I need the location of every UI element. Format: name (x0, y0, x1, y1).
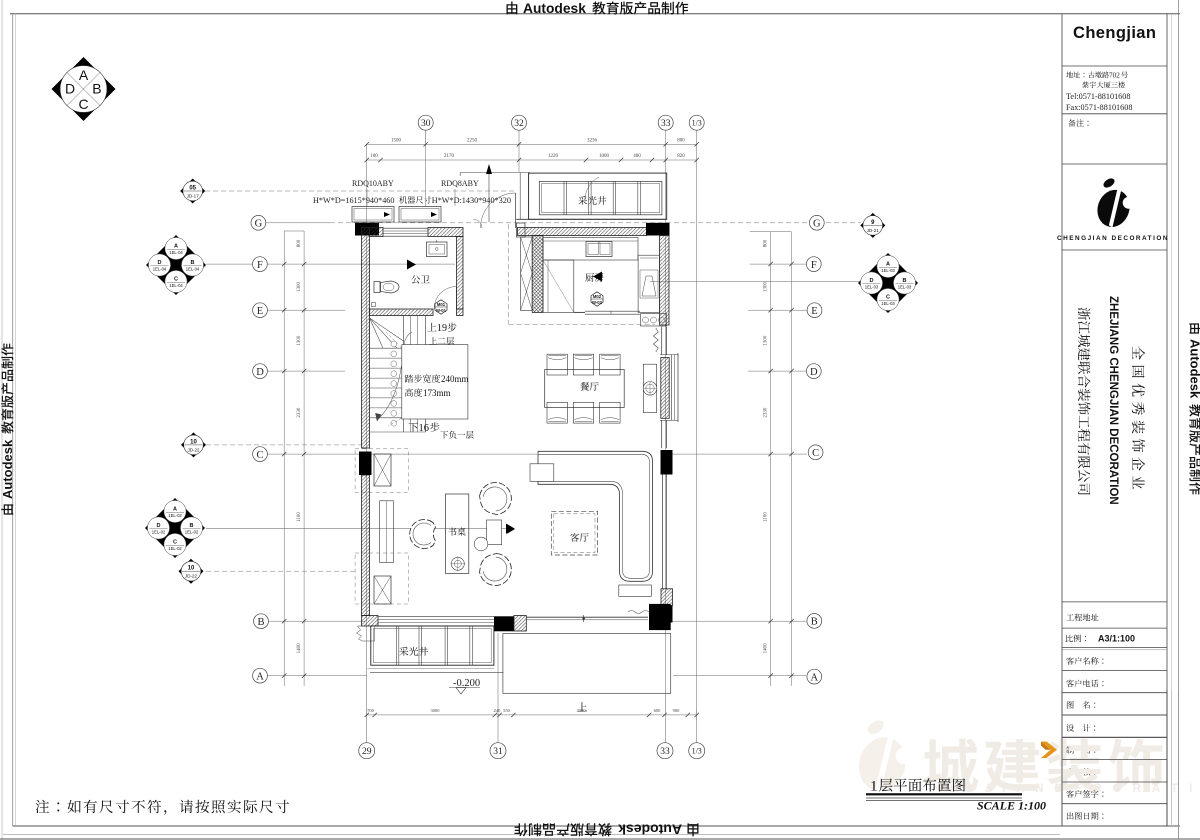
svg-text:JD-22: JD-22 (185, 574, 198, 579)
svg-text:1000: 1000 (599, 154, 610, 159)
svg-text:1300: 1300 (297, 335, 302, 346)
svg-text:2330: 2330 (764, 407, 769, 418)
svg-text:2330: 2330 (297, 407, 302, 418)
svg-text:JD-22: JD-22 (187, 447, 200, 452)
svg-text:800: 800 (297, 239, 302, 247)
svg-text:Autodesk: Autodesk (1188, 339, 1200, 399)
svg-text:Chengjian: Chengjian (1073, 24, 1156, 42)
svg-text:A: A (886, 262, 890, 268)
svg-text:F: F (811, 260, 817, 271)
svg-text:3000: 3000 (431, 708, 441, 713)
svg-text:SCALE 1:100: SCALE 1:100 (977, 799, 1046, 813)
svg-text:702: 702 (1109, 72, 1120, 80)
svg-text:240mm: 240mm (441, 374, 469, 384)
svg-text:A: A (174, 244, 178, 250)
svg-text:D: D (810, 367, 818, 378)
svg-text:B: B (92, 81, 101, 97)
svg-text:1100: 1100 (764, 512, 769, 522)
svg-text:CHENGJIAN DECORATION: CHENGJIAN DECORATION (1057, 235, 1169, 242)
svg-text:1EL-04: 1EL-04 (169, 250, 183, 255)
svg-text:RDQ10ABY: RDQ10ABY (352, 179, 394, 188)
svg-text:D: D (870, 278, 874, 284)
svg-text:1300: 1300 (764, 282, 769, 293)
svg-text:1500: 1500 (391, 139, 402, 144)
svg-text:C: C (886, 295, 890, 301)
svg-text:1: 1 (870, 779, 878, 795)
svg-text:A: A (173, 507, 177, 513)
svg-text:Autodesk: Autodesk (618, 822, 682, 838)
svg-text:D: D (158, 260, 162, 266)
svg-text:3000: 3000 (577, 708, 587, 713)
svg-text:Autodesk: Autodesk (523, 1, 586, 16)
svg-text:33: 33 (660, 747, 670, 757)
svg-text:1EL-03: 1EL-03 (881, 301, 895, 306)
svg-text:C: C (173, 540, 177, 546)
svg-text:JD-17: JD-17 (187, 194, 200, 199)
svg-text:700: 700 (367, 708, 375, 713)
svg-text:1220: 1220 (548, 154, 559, 159)
svg-text:W-01: W-01 (436, 308, 447, 313)
svg-text:D: D (256, 367, 264, 378)
svg-text:1100: 1100 (297, 512, 302, 522)
svg-text:1300: 1300 (297, 282, 302, 293)
svg-text:Fax:0571-88101608: Fax:0571-88101608 (1066, 103, 1132, 112)
svg-text:1/3: 1/3 (692, 747, 702, 756)
svg-text:B: B (903, 278, 907, 284)
svg-text:16: 16 (419, 423, 430, 434)
svg-text:32: 32 (514, 119, 524, 129)
svg-text:B: B (257, 617, 264, 628)
svg-text:1EL-03: 1EL-03 (898, 285, 912, 290)
svg-text:400: 400 (633, 154, 641, 159)
svg-text:B: B (811, 617, 818, 628)
svg-text:33: 33 (661, 119, 671, 129)
svg-text:1EL-02: 1EL-02 (152, 530, 166, 535)
svg-text:C: C (812, 448, 819, 459)
svg-text:900: 900 (673, 708, 681, 713)
svg-text:G: G (255, 218, 263, 229)
svg-text:30: 30 (421, 119, 431, 129)
svg-text:C: C (78, 96, 88, 112)
svg-text:E: E (811, 306, 817, 317)
svg-text:1EL-03: 1EL-03 (865, 285, 879, 290)
svg-text:ZHEJIANG CHENGJIAN DECORATION: ZHEJIANG CHENGJIAN DECORATION (1107, 296, 1119, 505)
svg-text:1/3: 1/3 (692, 119, 702, 128)
svg-text:820: 820 (677, 154, 685, 159)
svg-text:A3/1:100: A3/1:100 (1098, 634, 1135, 644)
svg-text:JD-21: JD-21 (867, 228, 880, 233)
svg-text:1400: 1400 (297, 643, 302, 654)
svg-text:Tel:0571-88101608: Tel:0571-88101608 (1066, 92, 1130, 101)
svg-text:800: 800 (677, 139, 685, 144)
svg-text:100: 100 (370, 154, 378, 159)
svg-text:550: 550 (503, 708, 511, 713)
svg-text:C: C (174, 277, 178, 283)
svg-text:A: A (79, 67, 89, 83)
svg-text:19: 19 (437, 323, 447, 334)
svg-text:C: C (256, 450, 263, 461)
svg-text:1400: 1400 (764, 643, 769, 654)
svg-text:M02: M02 (593, 294, 602, 299)
svg-text:3236: 3236 (587, 139, 598, 144)
svg-text:05: 05 (189, 186, 196, 192)
svg-text:W-02: W-02 (592, 300, 603, 305)
svg-text:F: F (257, 260, 263, 271)
svg-text:1EL-03: 1EL-03 (881, 268, 895, 273)
svg-text:240: 240 (494, 708, 502, 713)
svg-text:H*W*D:1430*940*320: H*W*D:1430*940*320 (432, 196, 511, 205)
svg-text:1EL-02: 1EL-02 (185, 530, 199, 535)
svg-text:A: A (811, 672, 819, 683)
svg-text:600: 600 (654, 708, 662, 713)
svg-text:800: 800 (764, 239, 769, 247)
svg-text:Autodesk: Autodesk (0, 439, 15, 499)
svg-text:10: 10 (188, 566, 195, 572)
svg-text:1EL-04: 1EL-04 (169, 283, 183, 288)
svg-text:D: D (157, 523, 161, 529)
svg-text:29: 29 (362, 747, 372, 757)
svg-text:B: B (191, 260, 195, 266)
svg-text:173mm: 173mm (423, 388, 451, 398)
svg-text:A: A (256, 671, 264, 682)
svg-text:1EL-02: 1EL-02 (168, 513, 182, 518)
svg-text:10: 10 (190, 439, 197, 445)
svg-text:1EL-04: 1EL-04 (153, 267, 167, 272)
svg-text:1EL-02: 1EL-02 (168, 546, 182, 551)
svg-text:RDQ8ABY: RDQ8ABY (441, 179, 479, 188)
svg-text:1EL-04: 1EL-04 (186, 267, 200, 272)
svg-text:E: E (257, 306, 263, 317)
svg-text:2250: 2250 (467, 139, 478, 144)
svg-text:31: 31 (493, 747, 503, 757)
svg-text:D: D (65, 81, 75, 97)
svg-text:M01: M01 (437, 302, 446, 307)
svg-text:B: B (190, 523, 194, 529)
svg-text:2170: 2170 (444, 154, 455, 159)
svg-text:1300: 1300 (764, 335, 769, 346)
svg-text:G: G (813, 218, 821, 229)
svg-text:H*W*D=1615*940*460: H*W*D=1615*940*460 (313, 196, 394, 205)
